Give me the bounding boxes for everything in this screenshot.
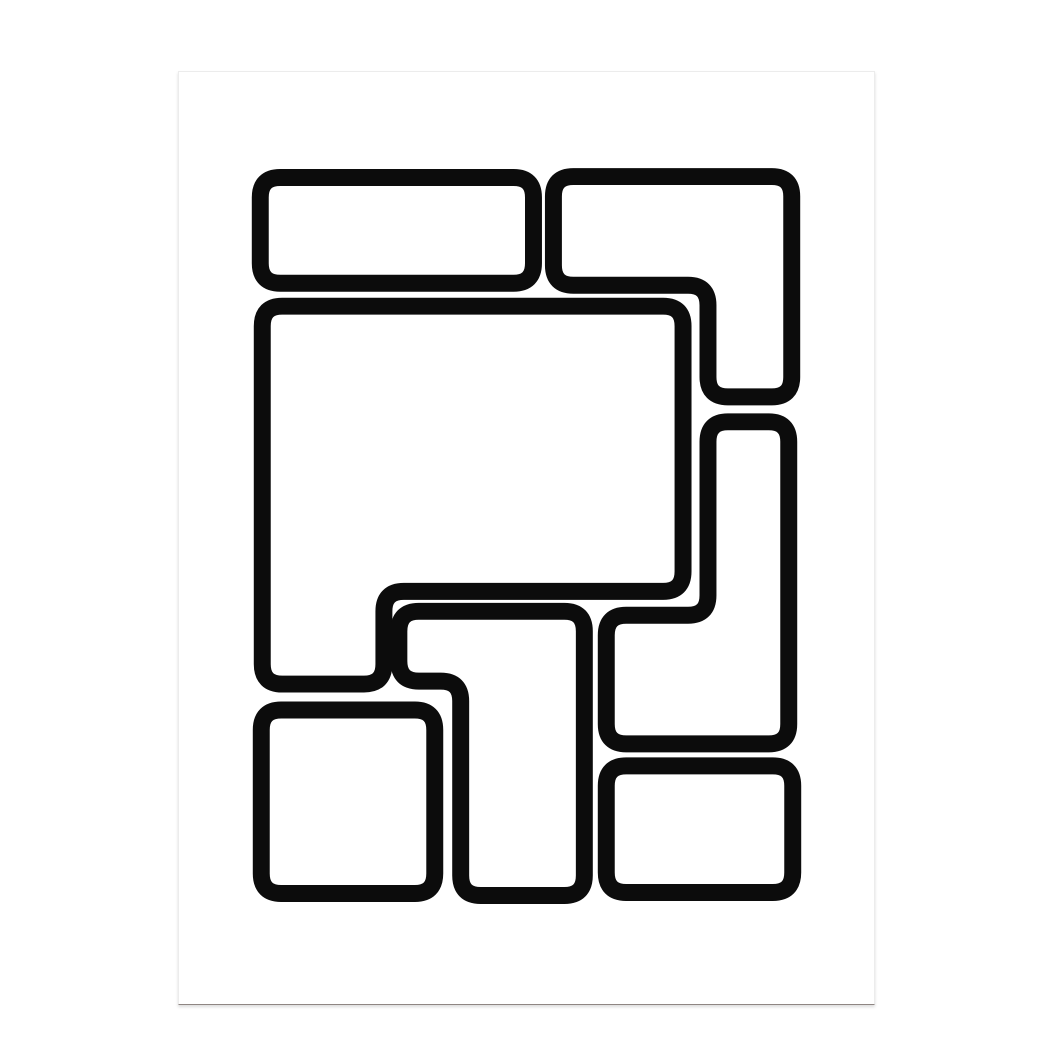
abstract-artwork	[179, 72, 874, 1004]
top-left-rounded-rectangle	[260, 178, 533, 284]
bottom-right-rounded-rectangle	[606, 766, 792, 893]
page-background: { "page": { "background_color": "#ffffff…	[0, 0, 1055, 1055]
art-print-poster	[178, 71, 875, 1005]
bottom-left-rounded-square	[261, 710, 435, 893]
